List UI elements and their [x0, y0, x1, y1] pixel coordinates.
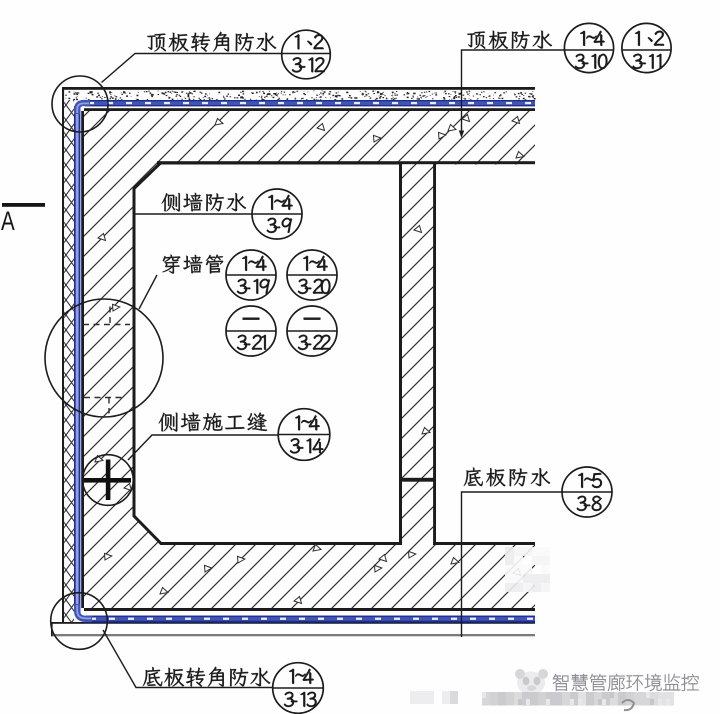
svg-text:A: A — [1, 206, 15, 236]
